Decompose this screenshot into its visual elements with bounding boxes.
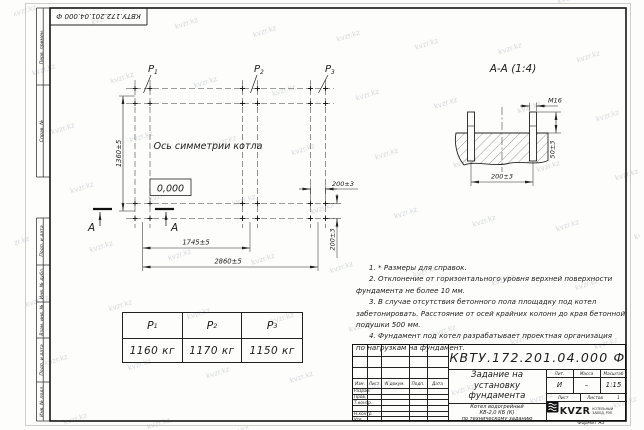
margin-label-vzam-inv: Взам. инв. №	[39, 304, 45, 335]
note-line: 3. В случае отсутствия бетонного пола пл…	[356, 296, 626, 307]
dim-m16-text: М16	[548, 97, 562, 105]
rev-col-list: Лист	[367, 378, 381, 388]
dim-200-section-text: 200±3	[491, 173, 513, 181]
lit-header: Лит.	[546, 369, 573, 377]
sheets-value: 1	[617, 395, 620, 400]
dim-bolt-v-text: 200±3	[329, 229, 337, 251]
note-line: фундамента не более 10 мм.	[356, 285, 626, 296]
note-line: 4. Фундамент под котел разрабатывает про…	[356, 330, 626, 341]
margin-label-inv-dubl: Инв. № дубл.	[39, 268, 45, 299]
load-table: P1 P2 P3 1160 кг 1170 кг 1150 кг	[122, 312, 303, 363]
load-table-value-p3: 1150 кг	[242, 339, 302, 362]
mass-value: –	[573, 377, 600, 393]
mass-header: Масса	[573, 369, 600, 377]
scale-value: 1:15	[600, 377, 627, 393]
orientation-stamp-text: КВТУ.172.201.04.000 Ф	[56, 12, 140, 20]
margin-label-sprav-no: Справ. №	[39, 120, 45, 143]
load-table-header-p3: P3	[242, 313, 302, 339]
product-name: Котел водогрейный КВ-2,0 КБ (К) по техни…	[448, 403, 546, 422]
note-line: подушки 500 мм.	[356, 319, 626, 330]
lit-value: И	[546, 377, 573, 393]
margin-label-podp-data: Подп. и дата	[39, 225, 45, 256]
axis-of-symmetry-label: Ось симметрии котла	[154, 141, 263, 152]
margin-label-podp-data-2: Подп. и дата	[39, 344, 45, 375]
elevation-value: 0,000	[157, 184, 184, 195]
boiler-plant-logo-icon	[546, 401, 560, 413]
load-table-value-p2: 1170 кг	[183, 339, 243, 362]
drawing-title: Задание на установку фундамента	[448, 369, 546, 403]
dim-50-text: 50±3	[549, 141, 557, 159]
section-title: А-А (1:4)	[489, 63, 537, 75]
logo-text: KVZR	[560, 406, 591, 417]
note-line: забетонировать. Расстояние от осей крайн…	[356, 308, 626, 319]
dim-bolt-h-text: 200±3	[332, 180, 354, 188]
margin-label-inv-podl: Инв. № подл.	[39, 385, 45, 417]
logo-org-name: КОТЕЛЬНЫЙ ЗАВОД, РЭП	[592, 408, 613, 416]
drawing-sheet: kvzr.kz kvzr.kz Перв. примен. Справ. № П…	[0, 0, 644, 430]
document-number: КВТУ.172.201.04.000 Ф	[448, 345, 627, 369]
dim-1745-text: 1745±5	[182, 239, 209, 247]
rev-col-podp: Подп.	[409, 378, 427, 388]
rev-col-izm: Изм.	[353, 378, 367, 388]
rev-col-ndocum: N докум.	[381, 378, 409, 388]
sheets-cell: Листов1	[580, 393, 627, 401]
section-mark-a-left: А	[87, 222, 95, 234]
technical-notes: 1. * Размеры для справок. 2. Отклонение …	[356, 262, 626, 353]
manufacturer-logo: KVZR КОТЕЛЬНЫЙ ЗАВОД, РЭП	[546, 401, 627, 422]
rev-col-data: Дата	[427, 378, 448, 388]
dim-2860-text: 2860±5	[214, 258, 241, 266]
sign-row-utv: Утв.	[354, 416, 381, 422]
margin-label-perv-primen: Перв. примен.	[39, 30, 45, 65]
section-mark-a-right: А	[170, 222, 178, 234]
note-line: 2. Отклонение от горизонтального уровня …	[356, 273, 626, 284]
load-table-value-p1: 1160 кг	[123, 339, 183, 362]
scale-header: Масштаб	[600, 369, 627, 377]
note-line: 1. * Размеры для справок.	[356, 262, 626, 273]
load-table-header-p1: P1	[123, 313, 183, 339]
title-block: Изм. Лист N докум. Подп. Дата Разраб. Пр…	[352, 344, 626, 421]
format-label: Формат А3	[556, 421, 626, 426]
elevation-mark: 0,000	[150, 179, 191, 196]
dim-1360-text: 1360±5	[115, 140, 123, 167]
load-table-header-p2: P2	[183, 313, 243, 339]
sheet-label: Лист	[546, 393, 580, 401]
